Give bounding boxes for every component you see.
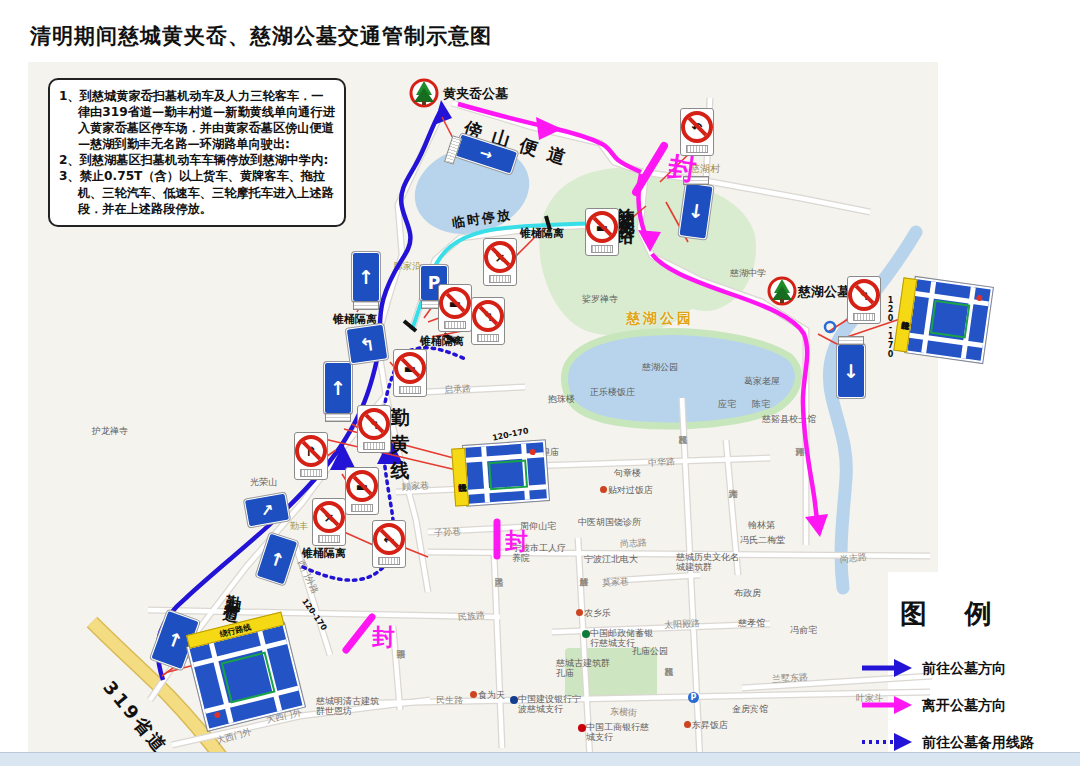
route-leave-arrow-2: [638, 230, 661, 252]
no-left-turn-sign-2: ↰: [357, 405, 391, 453]
label-qinhuang-line: 勤黄线: [388, 392, 414, 470]
bottom-bar: [0, 752, 1080, 766]
notice-line-2: 2、到慈湖墓区扫墓机动车车辆停放到慈湖中学内:: [59, 152, 335, 168]
label-cihu-park: 慈湖公园: [626, 310, 694, 328]
detour-diagram-sign-1: 绕行路线: [463, 440, 549, 506]
traffic-control-map: 清明期间慈城黄夹岙、慈湖公墓交通管制示意图 1、到慈城黄家岙扫墓机动车及人力三轮…: [0, 0, 1080, 766]
legend-title: 图 例: [900, 596, 1005, 632]
no-left-turn-sign-3: ←: [372, 520, 406, 568]
no-stopping-sign-2: ×: [312, 498, 346, 546]
no-turn-sign-bridge: ↰: [847, 276, 881, 324]
closure-bar-3: [346, 617, 372, 650]
route-to-arrowhead: [434, 100, 452, 125]
detour-code-3: 120-170: [886, 296, 895, 359]
label-qinfeng-road: 勤丰村道: [223, 580, 246, 599]
left-turn-sign: ↰: [346, 324, 389, 365]
cone-label-2: 锥桶隔离: [420, 334, 464, 349]
label-cihu-cemetery: 慈湖公墓: [798, 283, 850, 301]
label-huangjiaao-cemetery: 黄夹岙公墓: [443, 85, 508, 103]
no-truck-sign-3: ▬: [345, 467, 379, 515]
legend-item-backup-route: 前往公墓备用线路: [922, 734, 1034, 752]
oneway-up-sign-2-plate: [325, 413, 351, 422]
oneway-up-sign-2: ↑: [324, 362, 352, 414]
no-vehicle-sign-1: ▬: [585, 208, 619, 256]
huangjiaao-tree-icon: [411, 80, 437, 106]
closure-label-1: 封: [665, 148, 698, 190]
route-leave-arrow-3: [805, 514, 828, 537]
no-truck-sign-2: ▬: [393, 349, 427, 397]
no-left-turn-sign-1: ↰: [471, 297, 505, 345]
oneway-up-sign-1-plate: [353, 301, 379, 310]
cone-label-3: 锥桶隔离: [520, 226, 564, 241]
no-stopping-sign-1: ×: [483, 238, 517, 286]
detour-strip-label: 绕行路线: [451, 448, 469, 507]
oneway-down-sign-east-plate: [838, 336, 864, 345]
closure-label-3: 封: [372, 622, 395, 653]
no-uturn-sign-1: ↶: [680, 108, 714, 156]
detour-diagram-sign-3: 绕行路线: [905, 277, 993, 363]
cihu-tree-icon: [769, 278, 795, 304]
closure-label-2: 封: [505, 526, 528, 557]
no-truck-sign-1: ▬: [438, 284, 472, 332]
legend-item-to-cemetery: 前往公墓方向: [922, 660, 1006, 678]
no-right-turn-sign-1: ↱: [294, 432, 328, 480]
legend-item-leave-cemetery: 离开公墓方向: [922, 697, 1006, 715]
route-leave-arrow-1: [536, 117, 562, 140]
oneway-down-sign-east: ↓: [837, 344, 865, 398]
closure-bar-1: [636, 146, 664, 192]
notice-line-1: 1、到慈城黄家岙扫墓机动车及人力三轮客车．一律由319省道—勤丰村道—新勤黄线单…: [59, 88, 335, 152]
cone-label-4: 锥桶隔离: [302, 546, 346, 561]
notice-box: 1、到慈城黄家岙扫墓机动车及人力三轮客车．一律由319省道—勤丰村道—新勤黄线单…: [48, 78, 346, 227]
oneway-up-sign-1: ↑: [352, 252, 380, 302]
notice-line-3: 3、禁止0.75T（含）以上货车、黄牌客车、拖拉机、三轮汽车、低速车、三轮摩托车…: [59, 168, 335, 216]
